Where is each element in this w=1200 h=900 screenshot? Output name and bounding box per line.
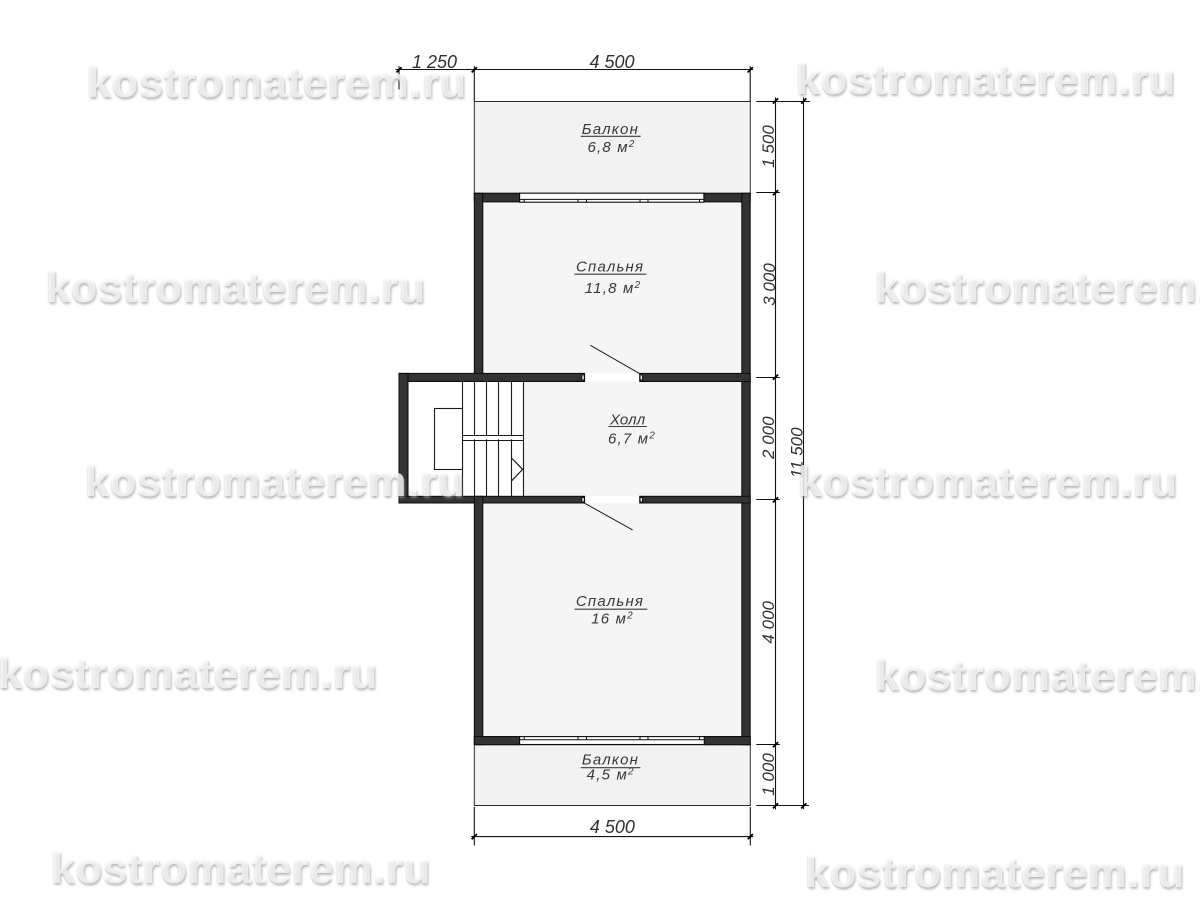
svg-text:4,5 м2: 4,5 м2 — [587, 767, 635, 784]
svg-text:6,8 м2: 6,8 м2 — [587, 139, 635, 156]
svg-text:11,8 м2: 11,8 м2 — [585, 280, 642, 297]
svg-text:4 500: 4 500 — [589, 52, 634, 72]
svg-text:1 500: 1 500 — [759, 125, 778, 168]
svg-text:6,7 м2: 6,7 м2 — [608, 431, 656, 448]
svg-text:Спальня: Спальня — [576, 259, 644, 276]
svg-text:2 000: 2 000 — [759, 416, 778, 460]
svg-text:Холл: Холл — [609, 411, 646, 428]
svg-text:4 000: 4 000 — [759, 600, 778, 643]
svg-text:Спальня: Спальня — [576, 593, 644, 610]
svg-text:3 000: 3 000 — [760, 263, 779, 306]
svg-text:1 000: 1 000 — [759, 753, 778, 796]
svg-text:Балкон: Балкон — [582, 121, 639, 138]
svg-text:4 500: 4 500 — [590, 817, 635, 837]
